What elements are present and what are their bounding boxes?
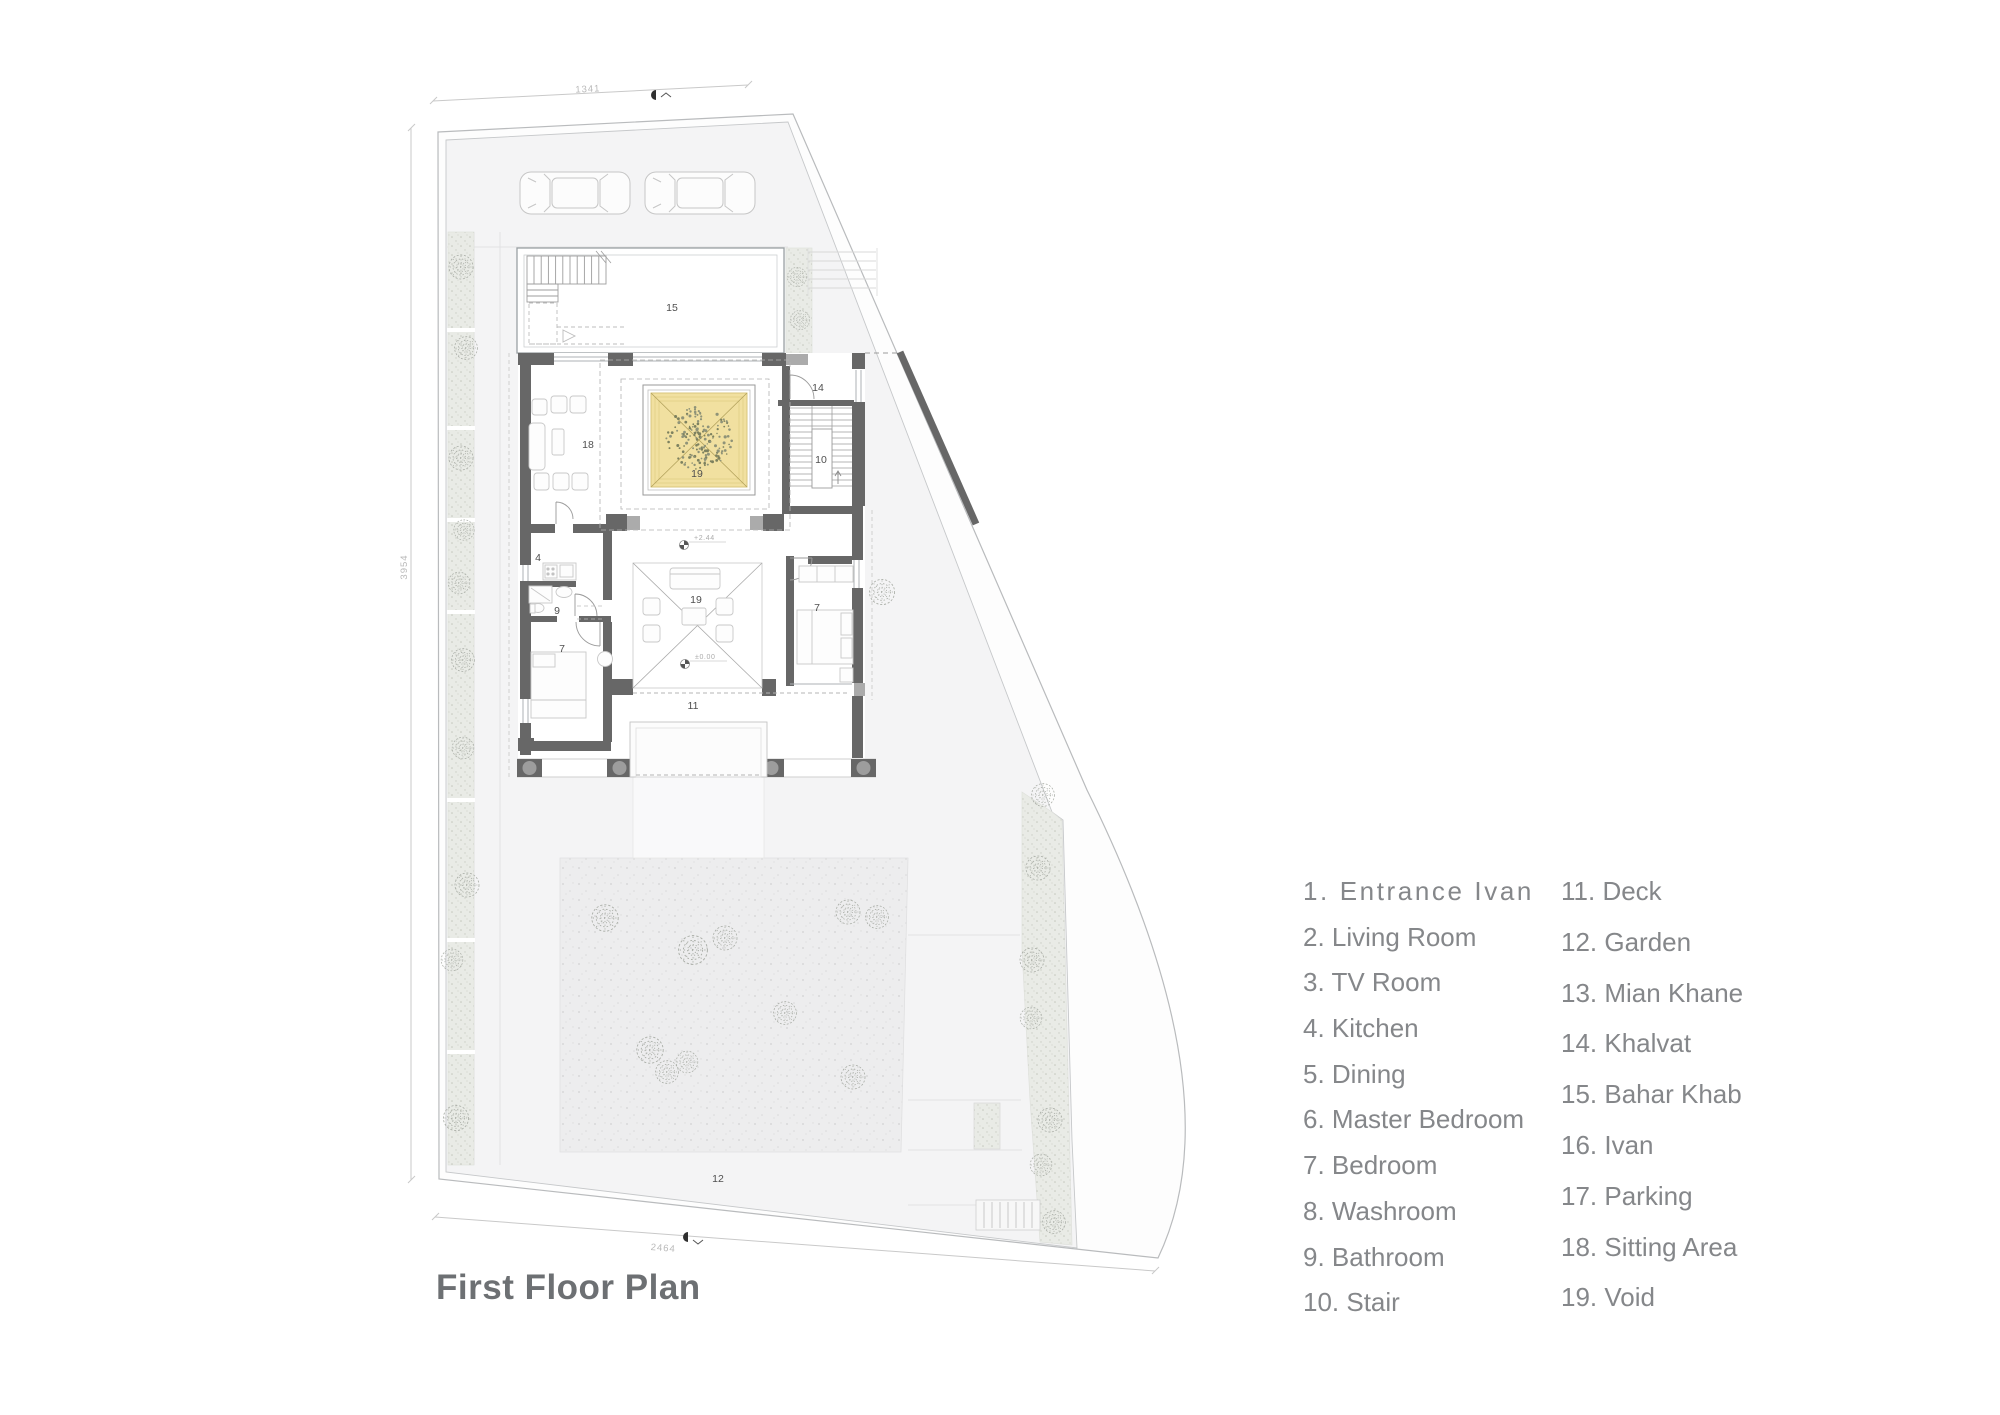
entrance-path <box>633 777 764 858</box>
planter-box-right <box>974 1103 1000 1149</box>
legend-column-2: 11. Deck12. Garden13. Mian Khane14. Khal… <box>1561 866 1743 1323</box>
annex-bahar-khab <box>517 248 784 353</box>
room-label-9: 9 <box>554 605 560 617</box>
legend-item-19: 19. Void <box>1561 1272 1743 1323</box>
legend-item-10: 10. Stair <box>1303 1280 1534 1326</box>
room-label-7: 7 <box>814 602 820 614</box>
legend-item-3: 3. TV Room <box>1303 960 1534 1006</box>
legend-item-5: 5. Dining <box>1303 1052 1534 1098</box>
room-label-7: 7 <box>559 643 565 655</box>
steps-bottom-right <box>976 1200 1040 1230</box>
room-label-19: 19 <box>690 594 702 606</box>
building <box>509 353 876 778</box>
dimension-top: 1341 <box>575 83 601 95</box>
legend-column-1: 1. Entrance Ivan2. Living Room3. TV Room… <box>1303 869 1534 1326</box>
dimension-left: 3954 <box>399 554 410 579</box>
legend-item-1: 1. Entrance Ivan <box>1303 869 1534 915</box>
room-label-14: 14 <box>812 382 824 394</box>
legend-item-7: 7. Bedroom <box>1303 1143 1534 1189</box>
legend-item-6: 6. Master Bedroom <box>1303 1097 1534 1143</box>
level-marker-text: +2.44 <box>694 535 715 542</box>
floor-plan-page: 1341 3954 2464 +2.44±0.00 15141018194919… <box>0 0 2000 1415</box>
room-label-19: 19 <box>691 468 703 480</box>
legend-item-18: 18. Sitting Area <box>1561 1222 1743 1273</box>
room-label-4: 4 <box>535 552 541 564</box>
legend-item-12: 12. Garden <box>1561 917 1743 968</box>
level-marker-text: ±0.00 <box>695 654 715 661</box>
plan-title: First Floor Plan <box>436 1268 701 1308</box>
legend-item-2: 2. Living Room <box>1303 915 1534 961</box>
legend-item-16: 16. Ivan <box>1561 1120 1743 1171</box>
room-label-11: 11 <box>688 700 699 712</box>
room-label-18: 18 <box>582 439 594 451</box>
dimension-bottom: 2464 <box>650 1242 676 1255</box>
legend-item-8: 8. Washroom <box>1303 1189 1534 1235</box>
legend-item-11: 11. Deck <box>1561 866 1743 917</box>
legend-item-17: 17. Parking <box>1561 1171 1743 1222</box>
legend-item-13: 13. Mian Khane <box>1561 968 1743 1019</box>
entrance-ivan <box>630 722 767 777</box>
room-label-10: 10 <box>815 454 827 466</box>
planting-strip-left <box>447 232 475 1165</box>
garden <box>560 858 908 1152</box>
legend-item-9: 9. Bathroom <box>1303 1235 1534 1281</box>
legend-item-14: 14. Khalvat <box>1561 1018 1743 1069</box>
room-label-12: 12 <box>712 1173 724 1185</box>
room-label-15: 15 <box>666 302 678 314</box>
legend-item-15: 15. Bahar Khab <box>1561 1069 1743 1120</box>
legend-item-4: 4. Kitchen <box>1303 1006 1534 1052</box>
